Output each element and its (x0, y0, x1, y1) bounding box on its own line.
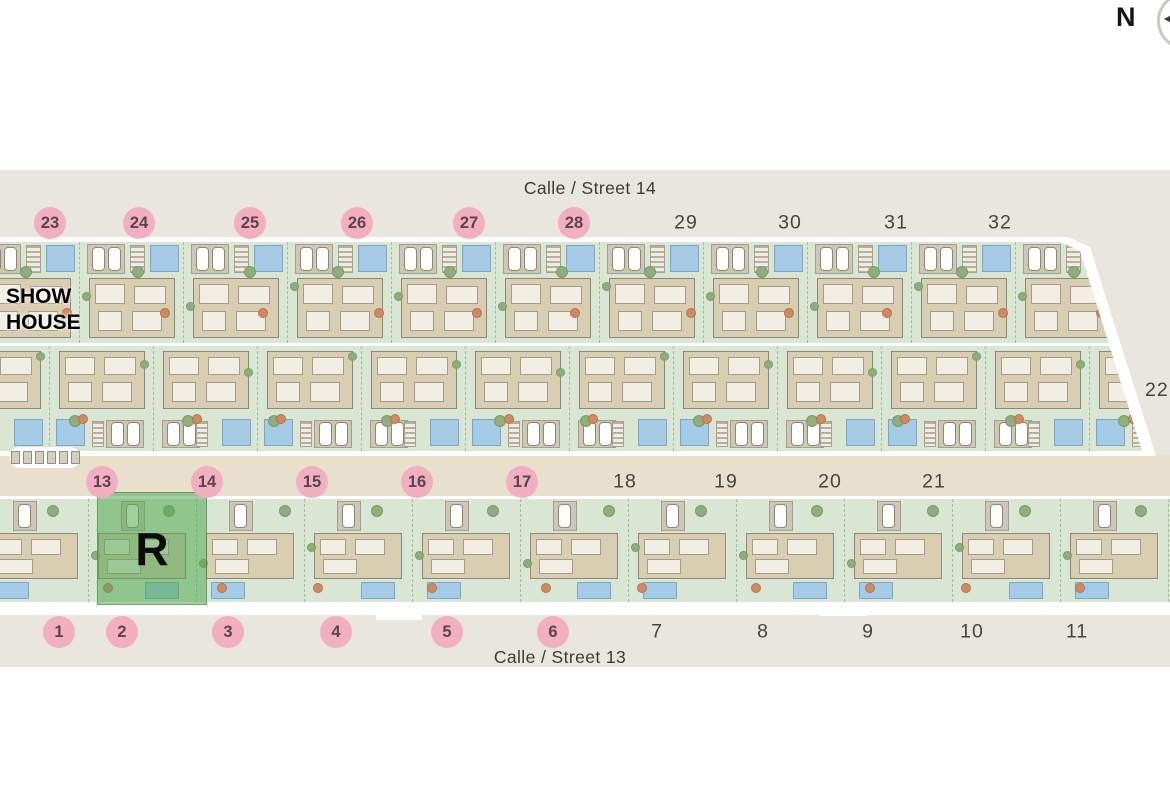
room (588, 382, 612, 402)
tree-icon (961, 583, 971, 593)
room (320, 539, 346, 555)
room (306, 311, 330, 331)
room (273, 357, 303, 375)
room (172, 382, 196, 402)
pool (577, 582, 611, 599)
tree-icon (556, 368, 565, 377)
tree-icon (307, 543, 316, 552)
plot-tile (496, 242, 600, 343)
tree-icon (78, 414, 88, 424)
plot-tile (600, 242, 704, 343)
plot-number-17[interactable]: 17 (506, 466, 538, 498)
room (206, 382, 236, 402)
room (199, 284, 229, 304)
room (377, 357, 407, 375)
room (622, 382, 652, 402)
room (644, 539, 670, 555)
room (312, 357, 344, 375)
room (212, 539, 238, 555)
plot-number-24[interactable]: 24 (123, 207, 155, 239)
pool (774, 245, 803, 272)
room (380, 382, 404, 402)
room (416, 357, 448, 375)
tree-icon (348, 352, 357, 361)
car-icon (18, 504, 31, 528)
room (728, 357, 760, 375)
room (323, 559, 357, 574)
car-icon (1098, 504, 1111, 528)
tree-icon (541, 583, 551, 593)
tree-icon (332, 266, 344, 278)
room (1111, 539, 1141, 555)
plot-tile (953, 499, 1061, 602)
plot-number-3[interactable]: 3 (212, 616, 244, 648)
car-icon (599, 422, 612, 446)
plots-row-north (0, 242, 1155, 343)
car-icon (527, 422, 540, 446)
room (202, 311, 226, 331)
plot-tile (845, 499, 953, 602)
tree-icon (660, 352, 669, 361)
tree-icon (882, 308, 892, 318)
car-icon (1015, 422, 1028, 446)
room (1108, 382, 1132, 402)
room (722, 311, 746, 331)
house-footprint (638, 533, 726, 579)
parking-pad (786, 420, 824, 448)
tree-icon (686, 308, 696, 318)
tree-icon (816, 414, 826, 424)
room (930, 311, 954, 331)
tree-icon (472, 308, 482, 318)
room (104, 357, 136, 375)
tree-icon (810, 302, 819, 311)
plot-tile (778, 346, 882, 451)
room (964, 311, 994, 331)
car-icon (990, 504, 1003, 528)
tree-icon (868, 368, 877, 377)
tree-icon (1068, 266, 1080, 278)
room (585, 357, 615, 375)
pool (846, 419, 875, 446)
tree-icon (702, 414, 712, 424)
room (215, 559, 249, 574)
tree-icon (192, 414, 202, 424)
plot-number-1[interactable]: 1 (43, 616, 75, 648)
tree-icon (36, 352, 45, 361)
parking-pad (711, 244, 749, 274)
room (431, 559, 465, 574)
house-footprint (854, 533, 942, 579)
room (726, 382, 756, 402)
plot-number-27[interactable]: 27 (453, 207, 485, 239)
car-icon (404, 247, 417, 271)
tree-icon (244, 266, 256, 278)
parking-pad (522, 420, 560, 448)
car-icon (820, 247, 833, 271)
plot-tile (392, 242, 496, 343)
stairs-icon (1132, 421, 1144, 447)
plot-tile (1061, 499, 1169, 602)
room (823, 284, 853, 304)
tree-icon (1075, 583, 1085, 593)
tree-icon (570, 308, 580, 318)
show-house-line2: HOUSE (6, 310, 81, 336)
plot-number-25[interactable]: 25 (234, 207, 266, 239)
tree-icon (313, 583, 323, 593)
room (65, 357, 95, 375)
room (966, 286, 998, 304)
house-footprint (609, 278, 695, 338)
sidewalk-notch (820, 603, 866, 616)
pool (670, 245, 699, 272)
plot-number-10: 10 (960, 621, 984, 644)
room (132, 311, 162, 331)
pool (254, 245, 283, 272)
room (652, 311, 682, 331)
tree-icon (1128, 414, 1138, 424)
tree-icon (1018, 292, 1027, 301)
room (1040, 357, 1072, 375)
plot-tile (154, 346, 258, 451)
room (787, 539, 817, 555)
room (1004, 382, 1028, 402)
tree-icon (186, 302, 195, 311)
pool (1054, 419, 1083, 446)
tree-icon (217, 583, 227, 593)
plot-number-32: 32 (988, 212, 1012, 235)
compass-arrow-icon (1164, 13, 1170, 25)
room (68, 382, 92, 402)
room (446, 286, 478, 304)
room (550, 286, 582, 304)
room (1034, 311, 1058, 331)
parking-pad (191, 244, 229, 274)
room (571, 539, 601, 555)
stairs-icon (924, 421, 936, 447)
parking-pad (877, 501, 901, 531)
compass-icon (1157, 0, 1170, 50)
street-parking-icon (10, 447, 80, 468)
pool (430, 419, 459, 446)
stairs-icon (404, 421, 416, 447)
plot-number-7: 7 (651, 621, 663, 644)
plot-number-9: 9 (862, 621, 874, 644)
house-footprint (314, 533, 402, 579)
plot-tile (704, 242, 808, 343)
plot-number-14[interactable]: 14 (191, 466, 223, 498)
room (832, 357, 864, 375)
car-icon (716, 247, 729, 271)
car-icon (508, 247, 521, 271)
plot-number-28[interactable]: 28 (558, 207, 590, 239)
room (247, 539, 277, 555)
upper-block-plots (0, 242, 1155, 451)
house-footprint (817, 278, 903, 338)
room (927, 284, 957, 304)
tree-icon (394, 292, 403, 301)
car-icon (316, 247, 329, 271)
room (303, 284, 333, 304)
tree-icon (603, 505, 615, 517)
parking-pad (1093, 501, 1117, 531)
plot-tile (288, 242, 392, 343)
car-icon (751, 422, 764, 446)
car-icon (612, 247, 625, 271)
room (796, 382, 820, 402)
room (0, 357, 32, 375)
car-icon (234, 504, 247, 528)
pool (1009, 582, 1043, 599)
parking-pad (399, 244, 437, 274)
parking-pad (87, 244, 125, 274)
tree-icon (276, 414, 286, 424)
show-house-line1: SHOW (6, 284, 81, 310)
house-footprint (422, 533, 510, 579)
room (1068, 311, 1098, 331)
car-icon (735, 422, 748, 446)
stairs-icon (196, 421, 208, 447)
room (934, 382, 964, 402)
compass-north-label: N (1116, 2, 1136, 33)
plot-tile (258, 346, 362, 451)
car-icon (732, 247, 745, 271)
tree-icon (927, 505, 939, 517)
room (407, 284, 437, 304)
plot-number-13[interactable]: 13 (86, 466, 118, 498)
room (484, 382, 508, 402)
parking-pad (445, 501, 469, 531)
room (689, 357, 719, 375)
car-icon (959, 422, 972, 446)
room (0, 382, 28, 402)
house-footprint (475, 351, 561, 409)
tree-icon (82, 292, 91, 301)
room (895, 539, 925, 555)
room (481, 357, 511, 375)
plot-tile (362, 346, 466, 451)
room (355, 539, 385, 555)
pool (150, 245, 179, 272)
car-icon (666, 504, 679, 528)
house-footprint (163, 351, 249, 409)
pool (982, 245, 1011, 272)
car-icon (391, 422, 404, 446)
car-icon (1044, 247, 1057, 271)
stairs-icon (716, 421, 728, 447)
car-icon (196, 247, 209, 271)
room (514, 311, 538, 331)
plot-number-4[interactable]: 4 (320, 616, 352, 648)
parking-pad (106, 420, 144, 448)
tree-icon (523, 559, 532, 568)
room (340, 311, 370, 331)
plot-number-30: 30 (778, 212, 802, 235)
tree-icon (427, 583, 437, 593)
tree-icon (452, 360, 461, 369)
reserved-plot-overlay[interactable]: R (97, 492, 207, 605)
room (238, 286, 270, 304)
show-house-label: SHOW HOUSE (6, 284, 81, 337)
room (756, 311, 786, 331)
parking-pad (938, 420, 976, 448)
tree-icon (588, 414, 598, 424)
room (1003, 539, 1033, 555)
room (615, 284, 645, 304)
plot-number-29: 29 (674, 212, 698, 235)
car-icon (524, 247, 537, 271)
car-icon (92, 247, 105, 271)
house-footprint (297, 278, 383, 338)
house-footprint (0, 533, 78, 579)
pool (0, 582, 29, 599)
room (624, 357, 656, 375)
tree-icon (865, 583, 875, 593)
room (463, 539, 493, 555)
house-footprint (1025, 278, 1111, 338)
room (826, 311, 850, 331)
house-footprint (59, 351, 145, 409)
room (900, 382, 924, 402)
room (936, 357, 968, 375)
room (134, 286, 166, 304)
car-icon (791, 422, 804, 446)
tree-icon (784, 308, 794, 318)
pool (462, 245, 491, 272)
parking-pad (815, 244, 853, 274)
room (863, 559, 897, 574)
tree-icon (900, 414, 910, 424)
plots-row-south (0, 346, 1155, 451)
tree-icon (390, 414, 400, 424)
car-icon (212, 247, 225, 271)
house-footprint (995, 351, 1081, 409)
house-footprint (891, 351, 977, 409)
plot-number-31: 31 (884, 212, 908, 235)
parking-pad (730, 420, 768, 448)
parking-pad (769, 501, 793, 531)
street-14-label: Calle / Street 14 (524, 178, 656, 199)
plot-tile (737, 499, 845, 602)
car-icon (943, 422, 956, 446)
plot-22-label: 22 (1145, 379, 1169, 402)
tree-icon (140, 360, 149, 369)
parking-pad (985, 501, 1009, 531)
upper-block (0, 237, 1165, 456)
plot-tile (570, 346, 674, 451)
room (536, 539, 562, 555)
plot-tile (882, 346, 986, 451)
tree-icon (956, 266, 968, 278)
plot-number-23[interactable]: 23 (34, 207, 66, 239)
car-icon (108, 247, 121, 271)
tree-icon (602, 282, 611, 291)
plot-tile (674, 346, 778, 451)
plot-tile (986, 346, 1090, 451)
parking-pad (337, 501, 361, 531)
tree-icon (764, 360, 773, 369)
car-icon (836, 247, 849, 271)
house-footprint (371, 351, 457, 409)
pool (878, 245, 907, 272)
plot-tile (0, 346, 50, 451)
plot-tile (629, 499, 737, 602)
room (1001, 357, 1031, 375)
plot-tile (197, 499, 305, 602)
plot-number-6[interactable]: 6 (537, 616, 569, 648)
parking-pad (13, 501, 37, 531)
plot-tile (80, 242, 184, 343)
car-icon (882, 504, 895, 528)
plot-number-5[interactable]: 5 (431, 616, 463, 648)
parking-pad (0, 244, 21, 274)
tree-icon (47, 505, 59, 517)
tree-icon (371, 505, 383, 517)
pool (222, 419, 251, 446)
pool (358, 245, 387, 272)
house-footprint (683, 351, 769, 409)
room (862, 286, 894, 304)
room (208, 357, 240, 375)
tree-icon (756, 266, 768, 278)
room (31, 539, 61, 555)
plot-tile (50, 346, 154, 451)
room (860, 539, 886, 555)
room (971, 559, 1005, 574)
parking-pad (503, 244, 541, 274)
pool (793, 582, 827, 599)
room (618, 311, 642, 331)
plot-number-21: 21 (922, 471, 946, 494)
pool (566, 245, 595, 272)
compass: N (1112, 0, 1170, 50)
room (98, 311, 122, 331)
car-icon (543, 422, 556, 446)
plot-tile (305, 499, 413, 602)
tree-icon (998, 308, 1008, 318)
room (1079, 559, 1113, 574)
plot-number-15[interactable]: 15 (296, 466, 328, 498)
tree-icon (955, 543, 964, 552)
parking-pad (607, 244, 645, 274)
plot-tile (808, 242, 912, 343)
plot-number-26[interactable]: 26 (341, 207, 373, 239)
room (758, 286, 790, 304)
room (410, 311, 434, 331)
tree-icon (1096, 308, 1106, 318)
pool (361, 582, 395, 599)
plot-number-20: 20 (818, 471, 842, 494)
car-icon (0, 247, 1, 271)
tree-icon (644, 266, 656, 278)
plot-number-16[interactable]: 16 (401, 466, 433, 498)
parking-pad (229, 501, 253, 531)
tree-icon (415, 551, 424, 560)
tree-icon (1063, 551, 1072, 560)
room (1038, 382, 1068, 402)
tree-icon (498, 302, 507, 311)
car-icon (940, 247, 953, 271)
car-icon (167, 422, 180, 446)
car-icon (111, 422, 124, 446)
room (830, 382, 860, 402)
plot-number-2[interactable]: 2 (106, 616, 138, 648)
house-footprint (787, 351, 873, 409)
room (95, 284, 125, 304)
plot-number-8: 8 (757, 621, 769, 644)
house-footprint (530, 533, 618, 579)
reserved-plot-label: R (135, 526, 168, 572)
